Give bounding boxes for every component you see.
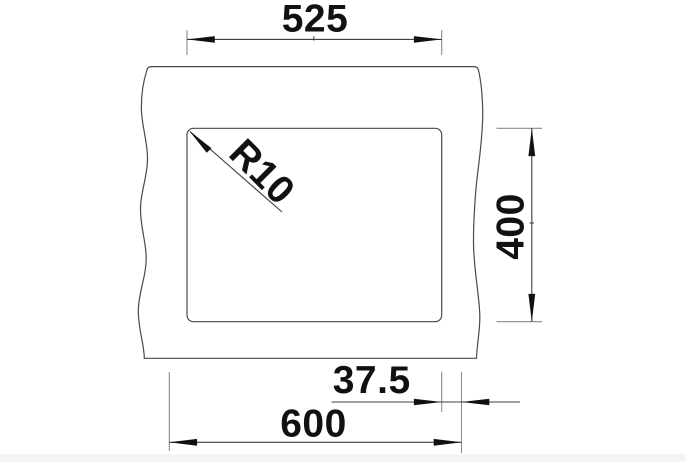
arrowhead-600-left [169,439,197,446]
outline-layer [138,67,482,359]
countertop-outline [138,67,482,359]
arrowhead-400-bottom [528,294,535,322]
arrowhead-600-right [434,439,462,446]
dimension-label-overall-width: 600 [280,403,347,446]
arrowhead-525-left [187,36,215,43]
arrowhead-375-right [462,399,490,406]
footer-strip [0,454,686,462]
dimension-label-cutout-height: 400 [490,193,533,260]
radius-label: R10 [221,131,303,213]
dimension-label-cutout-width: 525 [282,0,349,41]
sink-cutout-drawing: 525 400 37.5 600 R10 [0,0,686,462]
arrowhead-375-left [414,399,442,406]
technical-drawing-page: 525 400 37.5 600 R10 [0,0,686,462]
arrowhead-400-top [528,128,535,156]
dimension-label-side-margin: 37.5 [333,359,411,402]
arrowhead-radius-leader [189,131,211,153]
arrowhead-525-right [414,36,442,43]
